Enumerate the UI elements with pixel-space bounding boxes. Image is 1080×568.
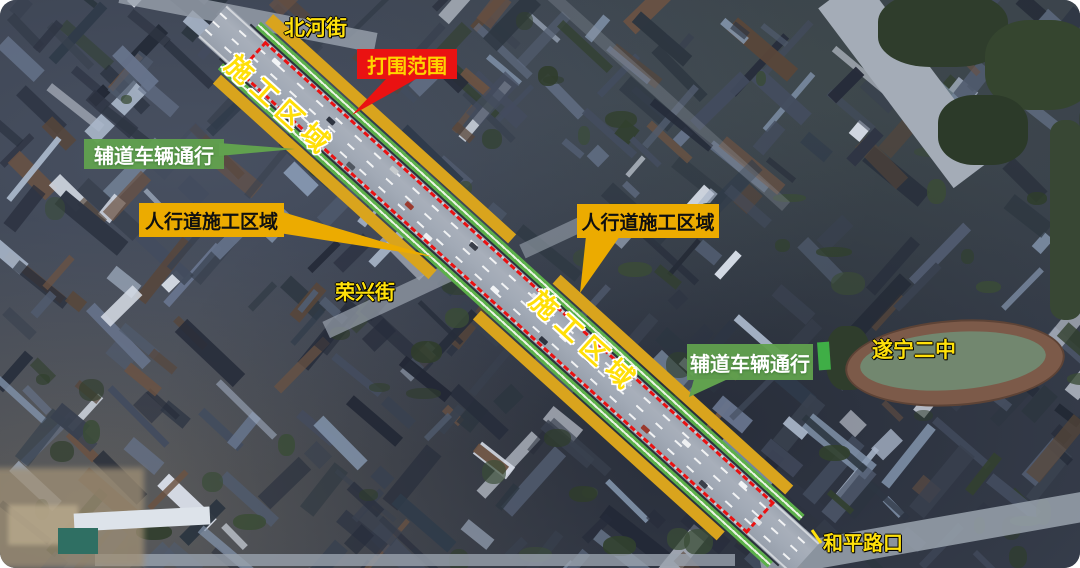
tree-cluster (278, 434, 295, 456)
tree-cluster (1009, 546, 1027, 568)
tree-cluster (603, 536, 636, 556)
tree-cluster (50, 441, 74, 462)
building-block (828, 67, 865, 104)
building-block (65, 291, 87, 312)
aux-road-label-right: 辅道车辆通行 (687, 344, 813, 380)
tree-cluster (406, 388, 441, 399)
tree-cluster (202, 472, 223, 492)
building-block (175, 319, 245, 387)
tree-cluster (775, 239, 790, 252)
tree-cluster (831, 272, 865, 295)
tree-cluster (121, 95, 132, 104)
sidewalk-label-left: 人行道施工区域 (139, 203, 284, 237)
building-block (0, 116, 23, 147)
heping-intersection-label: 和平路口 (823, 527, 903, 556)
building-block (668, 289, 689, 309)
sports-court (58, 528, 98, 554)
building-block (800, 132, 833, 163)
tree-cluster (569, 486, 597, 502)
tree-cluster (819, 445, 850, 461)
building-block (30, 291, 56, 319)
tree-cluster (233, 514, 266, 530)
tree-cluster (45, 197, 65, 220)
tree-cluster (83, 420, 100, 444)
tree-cluster (605, 111, 637, 128)
building-block (871, 429, 903, 461)
building-block (587, 145, 610, 168)
building-block (108, 385, 170, 448)
tree-cluster (369, 383, 390, 392)
tree-cluster (359, 489, 378, 501)
building-block (753, 121, 786, 156)
bottom-edge-road (95, 554, 735, 566)
tree-cluster (578, 126, 590, 145)
tree-cluster (914, 410, 933, 421)
tree-cluster (961, 249, 974, 264)
building-block (625, 155, 645, 177)
building-block (248, 281, 277, 311)
building-block (461, 519, 495, 550)
building-block (1001, 267, 1044, 310)
sidewalk-label-right: 人行道施工区域 (577, 204, 719, 238)
building-block (42, 255, 74, 290)
building-block (646, 509, 666, 529)
school-label: 遂宁二中 (872, 334, 956, 364)
building-block (101, 285, 143, 327)
tree-cluster (544, 429, 571, 447)
enclosure-label: 打围范围 (357, 49, 457, 79)
building-block (817, 215, 854, 252)
tree-cluster (573, 249, 599, 267)
tree-cluster (1027, 192, 1047, 205)
rongxing-street-label: 荣兴街 (335, 276, 395, 305)
building-block (333, 233, 373, 273)
tree-cluster (927, 179, 946, 204)
tree-cluster (618, 262, 652, 277)
tree-cluster (538, 66, 558, 86)
green-roof (817, 342, 831, 371)
tree-cluster (976, 281, 1001, 293)
tree-cluster (36, 374, 50, 385)
aux-road-label-left: 辅道车辆通行 (84, 139, 224, 169)
building-block (64, 0, 97, 8)
beihe-street-label: 北河街 (284, 12, 347, 42)
building-block (772, 284, 816, 325)
building-block (370, 466, 394, 490)
building-block (973, 550, 1001, 568)
building-block (149, 349, 178, 375)
tree-cluster (482, 129, 502, 149)
building-block (839, 410, 867, 437)
building-block (307, 240, 340, 273)
trees-right-edge (1050, 120, 1080, 320)
tree-cluster (482, 460, 506, 484)
tree-cluster (411, 341, 442, 363)
tree-cluster (516, 12, 533, 30)
building-block (493, 384, 523, 414)
building-block (304, 441, 332, 469)
tree-cluster (756, 71, 766, 86)
satellite-construction-map: 施工区域 施工区域 打围范围 辅道车辆通行 辅道车辆通行 人行道施工区域 人行道… (0, 0, 1080, 568)
building-block (3, 185, 45, 233)
trees-top-right-3 (938, 95, 1028, 165)
tree-cluster (816, 247, 852, 257)
tree-cluster (79, 379, 104, 401)
